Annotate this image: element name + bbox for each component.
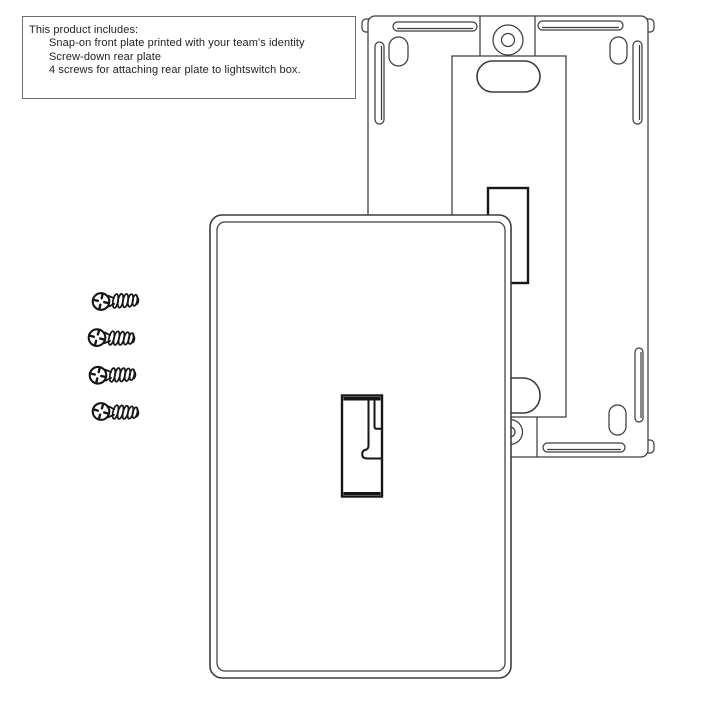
- screw-icon: [92, 292, 139, 311]
- screw-icon: [89, 366, 135, 384]
- screw-set: [88, 292, 139, 422]
- toggle-switch-opening: [342, 396, 382, 497]
- toggle-hole: [342, 396, 382, 497]
- screw-icon: [92, 403, 139, 422]
- product-diagram-page: This product includes: Snap-on front pla…: [0, 0, 720, 720]
- product-line-drawing: [0, 0, 720, 720]
- screw-icon: [88, 329, 134, 347]
- toggle-hole-bottom-shadow: [344, 492, 381, 495]
- front-plate: [210, 215, 511, 678]
